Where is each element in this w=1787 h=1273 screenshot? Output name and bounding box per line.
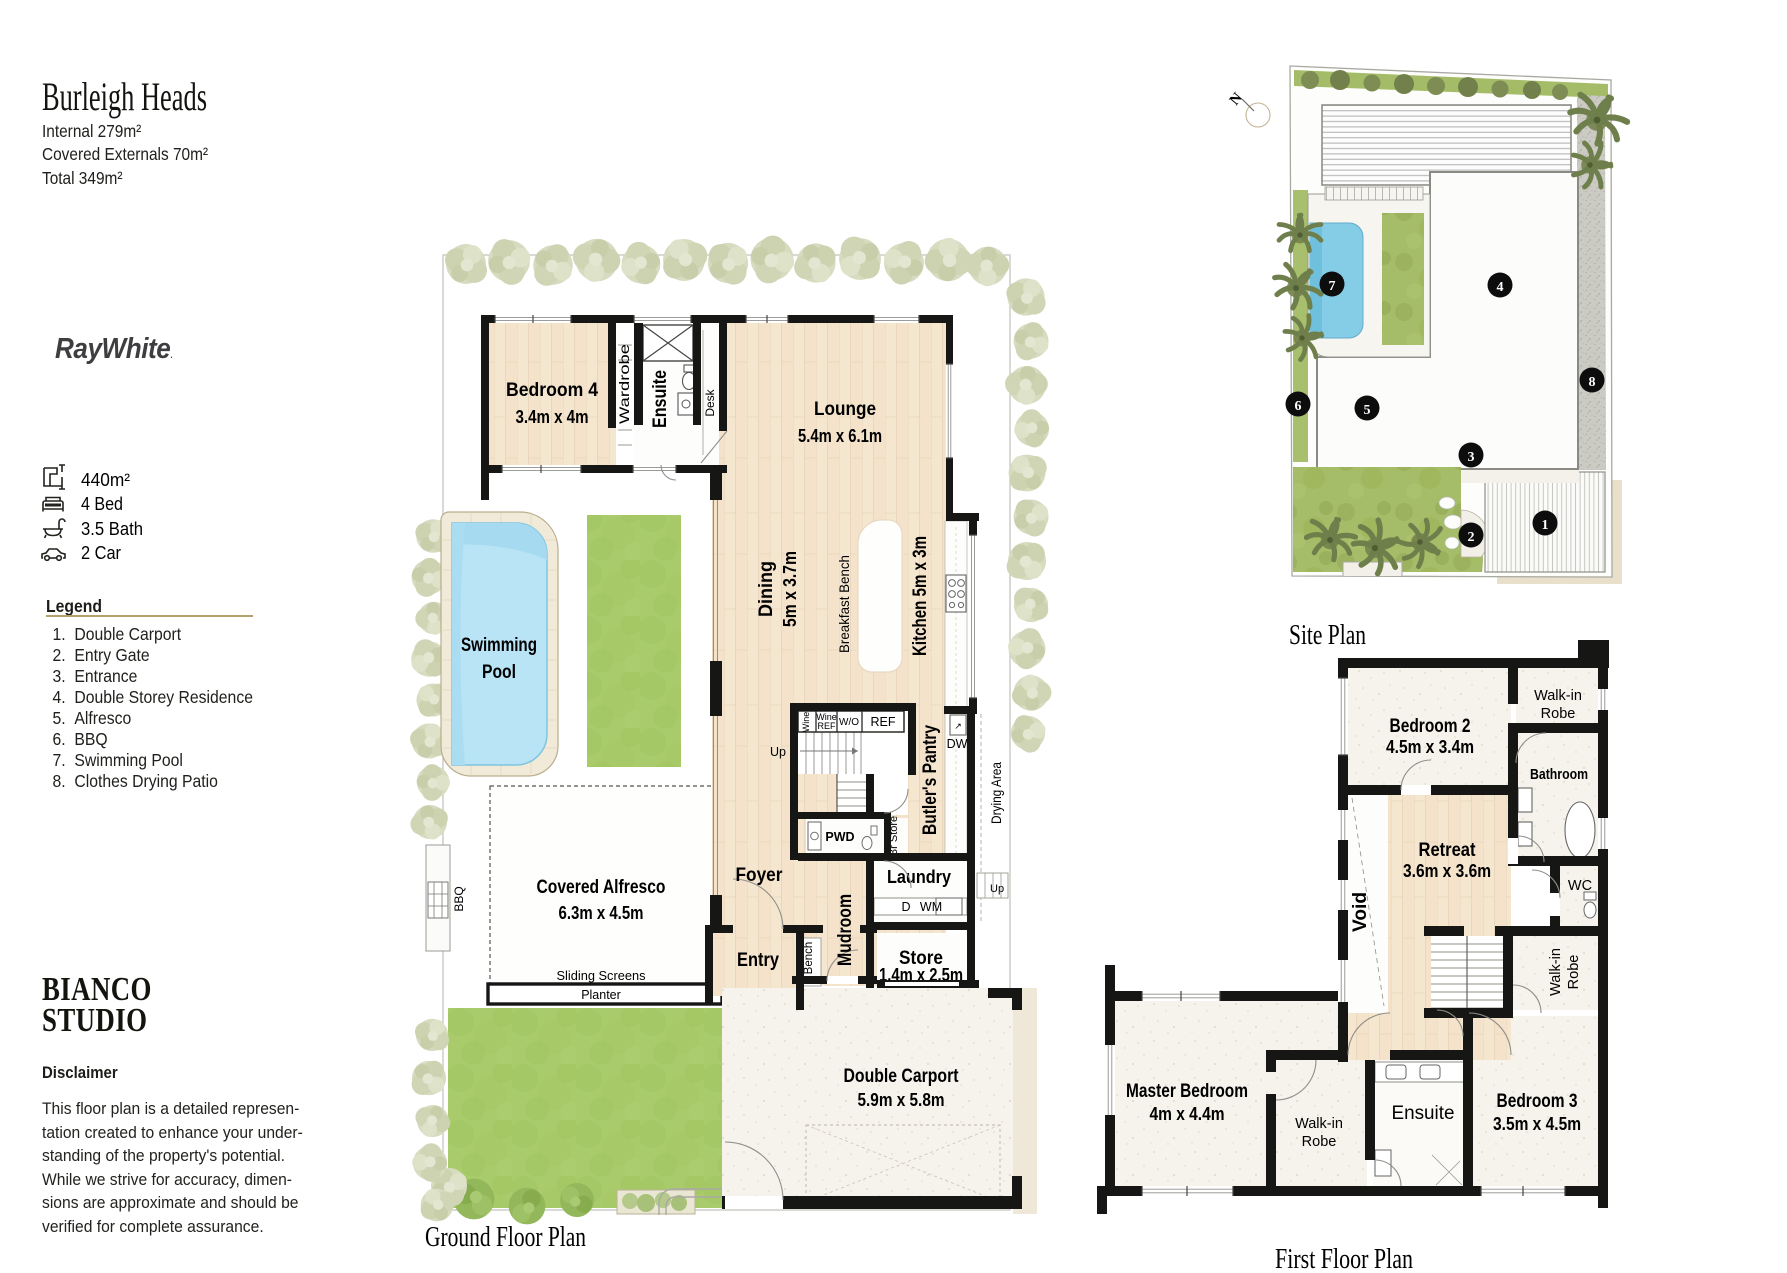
- svg-text:Bedroom 4: Bedroom 4: [506, 379, 598, 401]
- svg-text:2: 2: [1468, 530, 1475, 545]
- svg-text:Lounge: Lounge: [814, 398, 876, 420]
- svg-text:Kitchen 5m x 3m: Kitchen 5m x 3m: [909, 536, 931, 656]
- svg-text:Entry: Entry: [737, 949, 779, 971]
- svg-text:3.6m x 3.6m: 3.6m x 3.6m: [1403, 861, 1491, 881]
- svg-text:Bench: Bench: [803, 942, 815, 975]
- svg-text:Sliding Screens: Sliding Screens: [557, 969, 646, 983]
- svg-text:5: 5: [1364, 403, 1371, 418]
- svg-text:PWD: PWD: [825, 830, 854, 844]
- svg-text:N: N: [1227, 90, 1246, 109]
- svg-text:Dining: Dining: [755, 561, 777, 617]
- svg-text:Butler's Pantry: Butler's Pantry: [920, 725, 941, 835]
- svg-text:Double Carport: Double Carport: [844, 1065, 959, 1087]
- svg-text:5m x 3.7m: 5m x 3.7m: [780, 551, 800, 627]
- svg-text:5.9m x 5.8m: 5.9m x 5.8m: [858, 1090, 945, 1110]
- svg-text:WC: WC: [1568, 878, 1592, 894]
- svg-text:REF: REF: [871, 715, 896, 729]
- svg-text:Ground Floor Plan: Ground Floor Plan: [425, 1222, 586, 1253]
- svg-text:Bathroom: Bathroom: [1530, 766, 1588, 783]
- svg-text:3: 3: [1468, 450, 1475, 465]
- svg-text:6: 6: [1295, 399, 1302, 414]
- svg-text:REF: REF: [818, 721, 837, 731]
- svg-text:Foyer: Foyer: [736, 864, 783, 886]
- svg-text:Bedroom 2: Bedroom 2: [1390, 715, 1471, 737]
- svg-text:Retreat: Retreat: [1419, 839, 1476, 861]
- svg-text:Bedroom 3: Bedroom 3: [1497, 1090, 1578, 1112]
- svg-text:Planter: Planter: [581, 988, 621, 1002]
- svg-text:↗: ↗: [954, 721, 962, 731]
- svg-text:Master Bedroom: Master Bedroom: [1126, 1080, 1248, 1102]
- svg-text:Walk-in: Walk-in: [1534, 688, 1582, 704]
- svg-text:Robe: Robe: [1541, 706, 1576, 722]
- svg-text:WM: WM: [920, 900, 942, 914]
- svg-text:Pool: Pool: [482, 661, 516, 683]
- svg-text:4: 4: [1497, 280, 1504, 295]
- svg-text:Ensuite: Ensuite: [650, 370, 671, 428]
- svg-text:Robe: Robe: [1566, 955, 1582, 990]
- svg-text:Mudroom: Mudroom: [835, 894, 856, 966]
- svg-text:D: D: [901, 900, 910, 914]
- svg-text:Up: Up: [770, 745, 786, 759]
- svg-text:5.4m x 6.1m: 5.4m x 6.1m: [798, 426, 882, 446]
- svg-text:1: 1: [1542, 518, 1549, 533]
- svg-text:7: 7: [1329, 279, 1336, 294]
- svg-text:Swimming: Swimming: [461, 634, 537, 656]
- svg-text:3.4m x 4m: 3.4m x 4m: [516, 407, 589, 427]
- svg-text:BBQ: BBQ: [452, 886, 466, 911]
- svg-text:Site Plan: Site Plan: [1289, 620, 1366, 651]
- svg-text:8: 8: [1589, 375, 1596, 390]
- svg-text:Walk-in: Walk-in: [1295, 1116, 1343, 1132]
- svg-text:4m x 4.4m: 4m x 4.4m: [1150, 1104, 1225, 1124]
- svg-text:DW: DW: [947, 737, 968, 751]
- svg-text:Wardrobe: Wardrobe: [617, 344, 632, 424]
- svg-text:Void: Void: [1350, 892, 1371, 932]
- svg-text:Wine: Wine: [801, 712, 811, 733]
- svg-text:Robe: Robe: [1302, 1134, 1337, 1150]
- svg-text:Up: Up: [990, 883, 1004, 895]
- svg-text:Walk-in: Walk-in: [1548, 948, 1564, 996]
- svg-text:Covered Alfresco: Covered Alfresco: [537, 876, 666, 898]
- svg-text:6.3m x 4.5m: 6.3m x 4.5m: [559, 903, 644, 923]
- svg-text:First Floor Plan: First Floor Plan: [1275, 1244, 1413, 1273]
- svg-text:Ensuite: Ensuite: [1392, 1102, 1455, 1124]
- svg-text:W/O: W/O: [839, 717, 859, 728]
- svg-text:Drying Area: Drying Area: [989, 762, 1004, 824]
- svg-text:Breakfast Bench: Breakfast Bench: [836, 555, 852, 653]
- svg-text:4.5m x 3.4m: 4.5m x 3.4m: [1386, 737, 1474, 757]
- svg-text:Desk: Desk: [703, 388, 717, 416]
- svg-text:3.5m x 4.5m: 3.5m x 4.5m: [1493, 1114, 1581, 1134]
- svg-text:Laundry: Laundry: [887, 866, 952, 887]
